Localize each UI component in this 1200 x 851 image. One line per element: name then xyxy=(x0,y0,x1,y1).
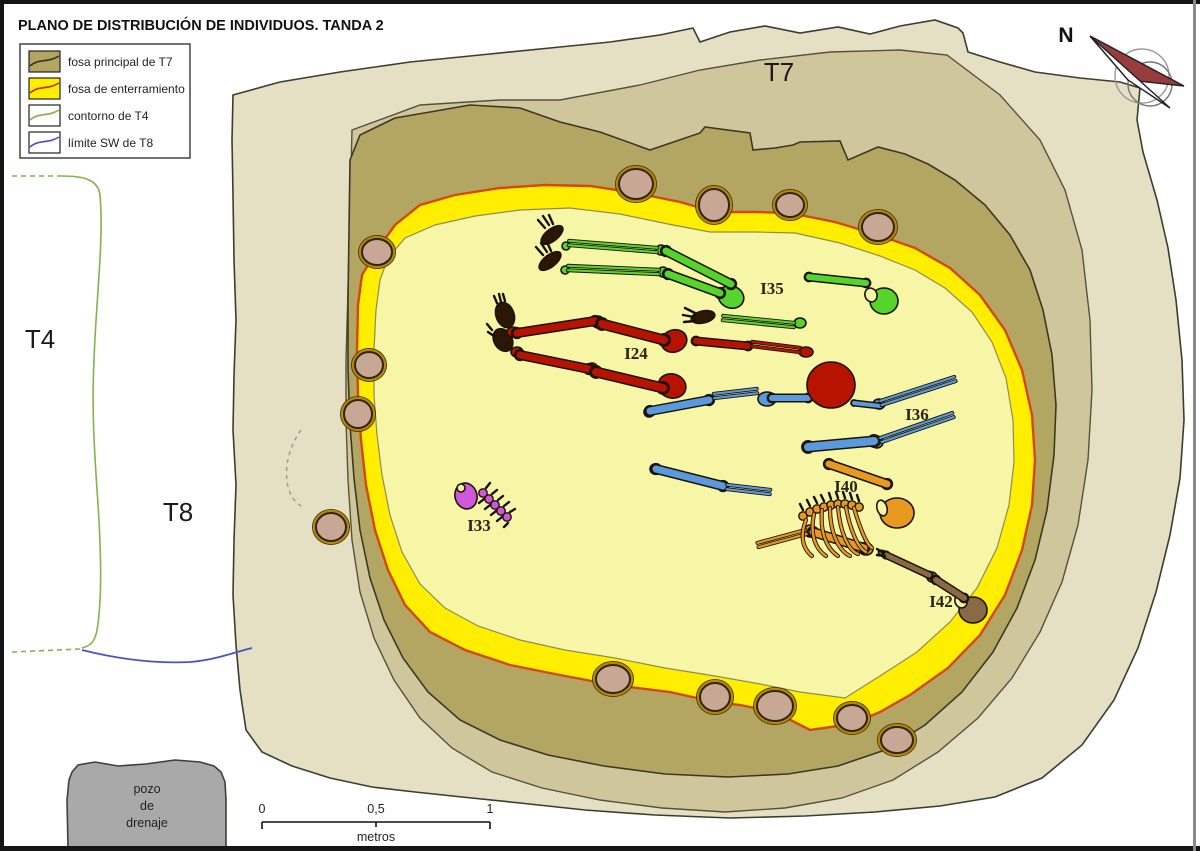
legend-swatch-limite-t8 xyxy=(29,132,60,153)
legend-item-3: contorno de T4 xyxy=(68,109,149,123)
site-plan-figure: I35I36I24I33I40I42 T7 T4 T8 pozo de dren… xyxy=(0,0,1200,851)
stone xyxy=(878,724,917,757)
scale-tick-05: 0,5 xyxy=(367,802,384,816)
stone xyxy=(696,186,733,225)
label-t4: T4 xyxy=(25,324,55,354)
legend-swatch-fosa-enterramiento xyxy=(29,78,60,99)
stone xyxy=(834,702,871,735)
legend-swatch-fosa-principal xyxy=(29,51,60,72)
plan-title: PLANO DE DISTRIBUCIÓN DE INDIVIDUOS. TAN… xyxy=(18,16,384,34)
individual-label-i35: I35 xyxy=(760,279,784,298)
stone xyxy=(313,510,350,545)
legend-swatch-contorno-t4 xyxy=(29,105,60,126)
drainage-well-label-1: pozo xyxy=(133,782,160,796)
individual-label-i42: I42 xyxy=(929,592,953,611)
stone xyxy=(697,680,734,715)
plan-canvas: I35I36I24I33I40I42 T7 T4 T8 pozo de dren… xyxy=(0,0,1200,851)
stone xyxy=(352,349,387,382)
stone xyxy=(341,397,376,432)
individual-label-i33: I33 xyxy=(467,516,491,535)
individual-label-i36: I36 xyxy=(905,405,929,424)
drainage-well-label-2: de xyxy=(140,799,154,813)
north-label: N xyxy=(1058,24,1073,47)
legend-item-2: fosa de enterramiento xyxy=(68,82,185,96)
scale-unit: metros xyxy=(357,830,395,844)
scale-tick-1: 1 xyxy=(487,802,494,816)
stone xyxy=(616,166,657,203)
drainage-well: pozo de drenaje xyxy=(67,760,226,847)
legend-item-1: fosa principal de T7 xyxy=(68,55,173,69)
individual-label-i24: I24 xyxy=(624,344,648,363)
stone xyxy=(359,236,396,269)
legend: fosa principal de T7 fosa de enterramien… xyxy=(20,44,190,158)
label-t7: T7 xyxy=(764,57,794,87)
stone xyxy=(754,688,797,725)
drainage-well-label-3: drenaje xyxy=(126,816,168,830)
stone xyxy=(593,662,634,697)
stone xyxy=(859,210,898,245)
label-t8: T8 xyxy=(163,497,193,527)
legend-item-4: límite SW de T8 xyxy=(68,136,153,150)
individual-label-i40: I40 xyxy=(834,477,858,496)
stone xyxy=(773,190,808,221)
scale-tick-0: 0 xyxy=(259,802,266,816)
